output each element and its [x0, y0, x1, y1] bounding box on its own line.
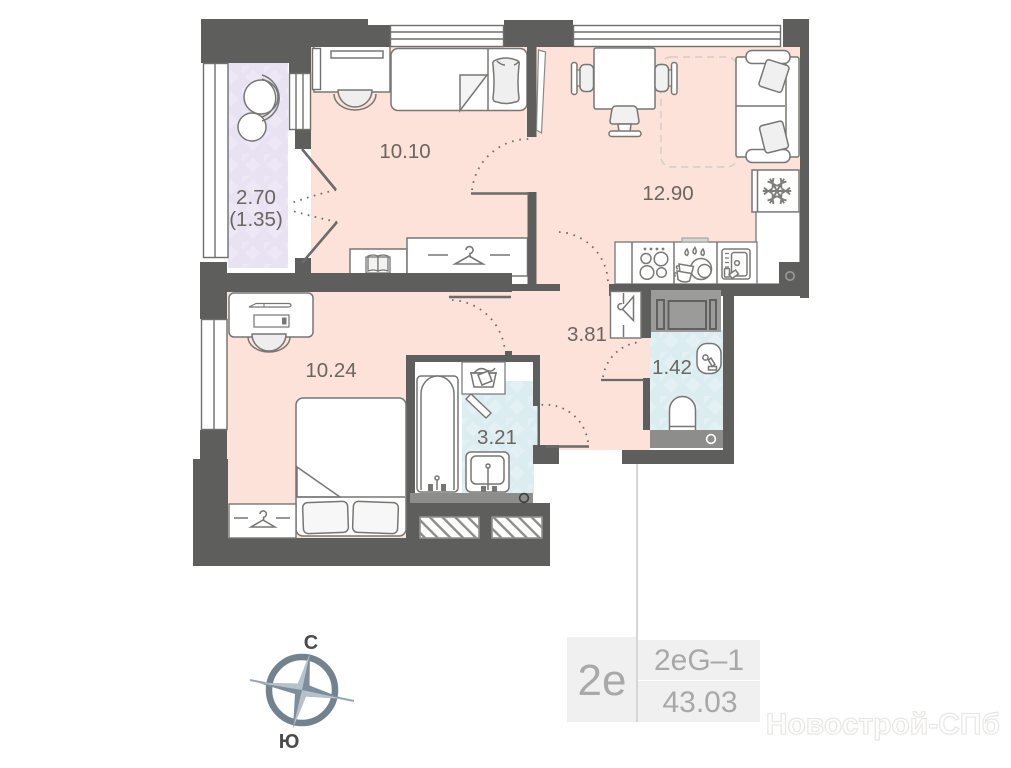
svg-text:(1.35): (1.35): [229, 208, 283, 231]
svg-text:Ю: Ю: [279, 731, 300, 753]
svg-text:3.21: 3.21: [477, 426, 517, 449]
svg-text:12.90: 12.90: [642, 182, 693, 205]
svg-text:43.03: 43.03: [662, 686, 737, 719]
svg-text:1.42: 1.42: [652, 356, 692, 379]
svg-text:С: С: [304, 632, 318, 654]
svg-text:10.24: 10.24: [305, 359, 356, 382]
svg-text:2е: 2е: [578, 656, 627, 705]
svg-text:Новострой-СПб: Новострой-СПб: [766, 708, 1000, 741]
svg-text:10.10: 10.10: [379, 140, 430, 163]
svg-text:2eG–1: 2eG–1: [654, 644, 744, 677]
svg-text:3.81: 3.81: [567, 323, 607, 346]
svg-text:2.70: 2.70: [236, 186, 276, 209]
